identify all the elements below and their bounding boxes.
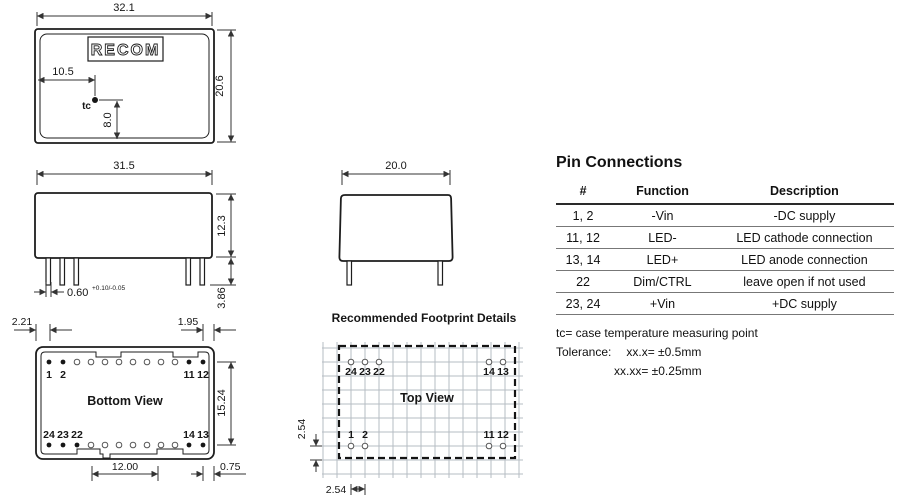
pin-cell: -DC supply	[715, 204, 894, 227]
pin-open	[500, 359, 506, 365]
dim-pin-width: 0.60	[67, 287, 88, 299]
pin-open	[158, 442, 164, 448]
pin-open	[486, 359, 492, 365]
fp-label-23: 23	[359, 366, 371, 378]
side-body	[35, 193, 212, 258]
pin-row: 23, 24+Vin+DC supply	[556, 293, 894, 315]
pin-open	[102, 442, 108, 448]
pin-row: 11, 12LED-LED cathode connection	[556, 227, 894, 249]
pin-label-22: 22	[71, 429, 83, 441]
pin-open	[172, 359, 178, 365]
dim-side-height: 12.3	[216, 215, 228, 236]
pin-filled	[61, 360, 66, 365]
pin-cell: LED+	[610, 249, 715, 271]
fp-label-22: 22	[373, 366, 385, 378]
pin-open	[158, 359, 164, 365]
dim-side-width: 31.5	[113, 160, 134, 172]
pin	[60, 258, 65, 285]
col-header-description: Description	[715, 182, 894, 204]
pin-cell: 13, 14	[556, 249, 610, 271]
note-tolerance-line: Tolerance:xx.x= ±0.5mm	[556, 343, 894, 362]
pin-label-1: 1	[46, 369, 52, 381]
note-tolerance-label: Tolerance:	[556, 345, 611, 359]
dim-pin-length: 3.86	[216, 287, 228, 308]
pin-filled	[75, 443, 80, 448]
pin-open	[362, 443, 368, 449]
pin-row: 13, 14LED+LED anode connection	[556, 249, 894, 271]
pin-filled	[47, 443, 52, 448]
front-view-drawing: 20.0	[339, 160, 452, 285]
pin-filled	[61, 443, 66, 448]
pin-open	[362, 359, 368, 365]
pin-open	[500, 443, 506, 449]
pin-filled	[187, 443, 192, 448]
drawings-canvas: 32.1 20.6 RECOM 10.5 tc 8.0 31.5 12.3	[0, 0, 540, 495]
fp-label-12: 12	[497, 429, 509, 441]
pin-open	[130, 442, 136, 448]
pin-filled	[201, 360, 206, 365]
pin-cell: leave open if not used	[715, 271, 894, 293]
pin-label-23: 23	[57, 429, 69, 441]
top-view-drawing: 32.1 20.6 RECOM 10.5 tc 8.0	[35, 2, 236, 143]
pin-open	[116, 359, 122, 365]
pin-cell: +Vin	[610, 293, 715, 315]
pin-label-12: 12	[197, 369, 209, 381]
note-tolerance-1: xx.x= ±0.5mm	[626, 345, 701, 359]
notes-block: tc= case temperature measuring point Tol…	[556, 324, 894, 382]
pin-cell: Dim/CTRL	[610, 271, 715, 293]
dim-span: 12.00	[112, 461, 138, 473]
dim-tc-y: 8.0	[102, 112, 114, 127]
pin-row: 22Dim/CTRLleave open if not used	[556, 271, 894, 293]
fp-label-11: 11	[483, 429, 494, 441]
pin-cell: -Vin	[610, 204, 715, 227]
dim-edge: 0.75	[220, 461, 241, 473]
pin-row: 1, 2-Vin-DC supply	[556, 204, 894, 227]
front-body	[339, 195, 452, 261]
pin-label-13: 13	[197, 429, 209, 441]
pin-cell: LED anode connection	[715, 249, 894, 271]
pin	[186, 258, 191, 285]
footprint-heading: Recommended Footprint Details	[332, 311, 517, 325]
dim-pitch-horizontal: 2.54	[326, 484, 347, 495]
pin-cell: LED cathode connection	[715, 227, 894, 249]
fp-label-2: 2	[362, 429, 368, 441]
pin-open	[144, 442, 150, 448]
pin-connections-table: # Function Description 1, 2-Vin-DC suppl…	[556, 182, 894, 315]
pin-cell: 22	[556, 271, 610, 293]
footprint-title: Top View	[400, 391, 454, 405]
pin-filled	[47, 360, 52, 365]
pin	[438, 261, 443, 285]
pin-open	[348, 359, 354, 365]
pin-label-14: 14	[183, 429, 195, 441]
footprint-drawing: 24 23 22 14 13 Top View 1 2 11 12 2.54 2…	[296, 342, 523, 495]
pin-label-11: 11	[183, 369, 194, 381]
tc-point	[92, 97, 98, 103]
recom-logo: RECOM	[91, 42, 161, 59]
header-row: # Function Description	[556, 182, 894, 204]
pin-open	[144, 359, 150, 365]
dim-left-offset: 2.21	[12, 316, 33, 328]
pin-open	[74, 359, 80, 365]
dim-row-pitch: 15.24	[216, 389, 228, 417]
pin-cell: 11, 12	[556, 227, 610, 249]
bottom-view-drawing: 2.21 1.95 1 2 11 12 Bottom View 24 23 22…	[12, 316, 246, 481]
pin-open	[102, 359, 108, 365]
dim-tc-x: 10.5	[52, 66, 73, 78]
dim-pitch-vertical: 2.54	[296, 419, 308, 440]
pin-cell: 23, 24	[556, 293, 610, 315]
pin-open	[376, 359, 382, 365]
pin-open	[116, 442, 122, 448]
dim-front-width: 20.0	[385, 160, 406, 172]
col-header-number: #	[556, 182, 610, 204]
col-header-function: Function	[610, 182, 715, 204]
pin	[347, 261, 352, 285]
pin	[46, 258, 51, 285]
note-tolerance-2: xx.xx= ±0.25mm	[556, 362, 894, 381]
pin-cell: LED-	[610, 227, 715, 249]
pin-cell: +DC supply	[715, 293, 894, 315]
pin-label-24: 24	[43, 429, 55, 441]
pin-connections-title: Pin Connections	[556, 154, 894, 172]
pin-open	[88, 359, 94, 365]
pin-filled	[201, 443, 206, 448]
mechanical-drawing-page: 32.1 20.6 RECOM 10.5 tc 8.0 31.5 12.3	[0, 0, 900, 495]
bottom-view-title: Bottom View	[87, 394, 163, 408]
pin-open	[172, 442, 178, 448]
fp-label-24: 24	[345, 366, 357, 378]
pin-open	[486, 443, 492, 449]
note-tc: tc= case temperature measuring point	[556, 324, 894, 343]
pin-connections-section: Pin Connections # Function Description 1…	[556, 154, 894, 382]
pin-filled	[187, 360, 192, 365]
pin	[200, 258, 205, 285]
dim-right-offset: 1.95	[178, 316, 199, 328]
dim-case-width: 32.1	[113, 2, 134, 14]
dim-case-height: 20.6	[214, 75, 226, 96]
pin-label-2: 2	[60, 369, 66, 381]
fp-label-1: 1	[348, 429, 354, 441]
tc-label: tc	[82, 101, 91, 112]
side-view-drawing: 31.5 12.3 3.86 0.60 +0.10/-0.05	[34, 160, 236, 309]
pin	[74, 258, 79, 285]
dim-pin-width-tolerance: +0.10/-0.05	[92, 285, 125, 292]
pin-open	[348, 443, 354, 449]
fp-label-14: 14	[483, 366, 495, 378]
pin-open	[88, 442, 94, 448]
pin-open	[130, 359, 136, 365]
fp-label-13: 13	[497, 366, 509, 378]
pin-cell: 1, 2	[556, 204, 610, 227]
pin-table-body: 1, 2-Vin-DC supply11, 12LED-LED cathode …	[556, 204, 894, 315]
